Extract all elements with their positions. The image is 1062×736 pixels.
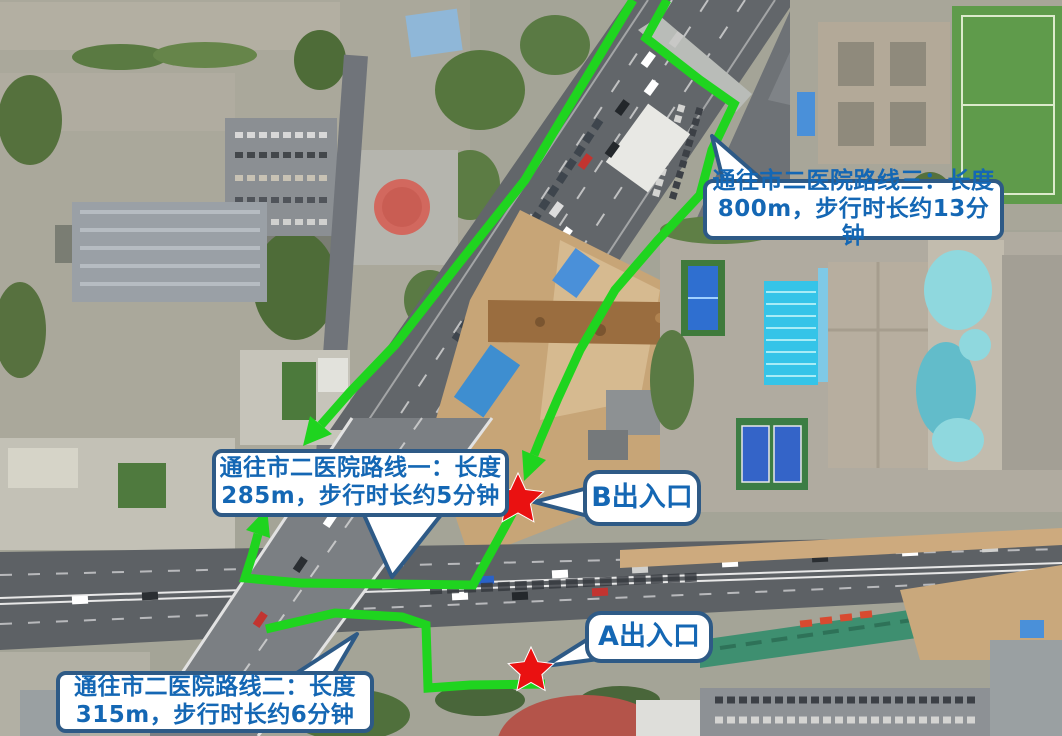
sports-complex xyxy=(650,216,1062,512)
callout-route2-line1: 通往市二医院路线二：长度 xyxy=(60,674,370,702)
satellite-map-image xyxy=(0,0,1062,736)
callout-route3: 通往市二医院路线三：长度 800m，步行时长约13分钟 xyxy=(703,179,1004,240)
callout-route1-line2: 285m，步行时长约5分钟 xyxy=(216,483,505,511)
callout-entrance-a: A出入口 xyxy=(585,611,713,663)
tennis-courts xyxy=(736,418,808,490)
convention-building xyxy=(72,202,267,302)
callout-route3-line1: 通往市二医院路线三：长度 xyxy=(707,168,1000,196)
satellite-basemap xyxy=(0,0,1062,736)
callout-route3-line2: 800m，步行时长约13分钟 xyxy=(707,196,1000,251)
swimming-pool xyxy=(764,281,818,385)
callout-route1-line1: 通往市二医院路线一：长度 xyxy=(216,455,505,483)
entrance-b-label: B出入口 xyxy=(587,482,697,514)
annotated-aerial-map: 通往市二医院路线三：长度 800m，步行时长约13分钟 通往市二医院路线一：长度… xyxy=(0,0,1062,736)
callout-route1: 通往市二医院路线一：长度 285m，步行时长约5分钟 xyxy=(212,449,509,517)
callout-entrance-b: B出入口 xyxy=(583,470,701,526)
water-park xyxy=(916,240,1004,470)
callout-route2-line2: 315m，步行时长约6分钟 xyxy=(60,702,370,730)
callout-route2: 通往市二医院路线二：长度 315m，步行时长约6分钟 xyxy=(56,671,374,733)
entrance-a-label: A出入口 xyxy=(589,621,709,653)
